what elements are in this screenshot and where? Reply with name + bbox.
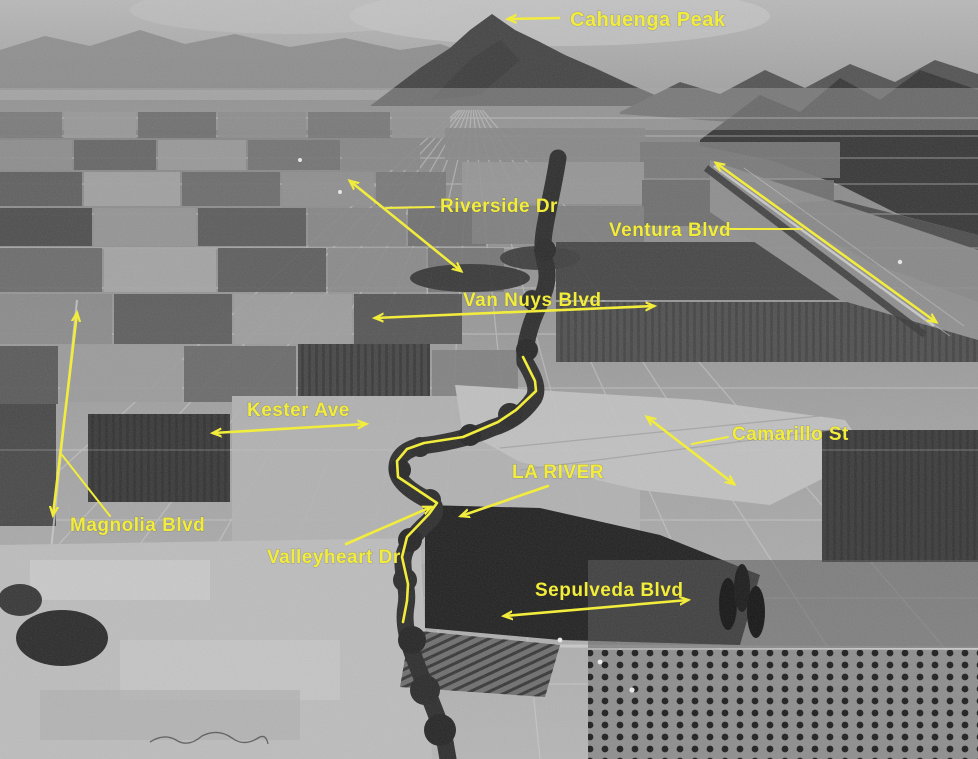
leader-riverside-dr [386, 207, 434, 208]
label-van-nuys-blvd: Van Nuys Blvd [463, 290, 602, 311]
label-sepulveda-blvd: Sepulveda Blvd [535, 580, 684, 601]
label-ventura-blvd: Ventura Blvd [609, 220, 731, 241]
label-camarillo-st: Camarillo St [732, 424, 849, 445]
label-la-river: LA RIVER [512, 462, 604, 483]
label-riverside-dr: Riverside Dr [440, 196, 558, 217]
label-valleyheart-dr: Valleyheart Dr [267, 547, 401, 568]
aerial-photograph: Cahuenga Peak Riverside Dr Ventura Blvd … [0, 0, 978, 759]
label-kester-ave: Kester Ave [247, 400, 350, 421]
label-cahuenga-peak: Cahuenga Peak [570, 9, 726, 31]
film-grain-overlay [0, 0, 978, 759]
arrow-cahuenga-peak [508, 18, 559, 19]
photo-background [0, 0, 978, 759]
label-magnolia-blvd: Magnolia Blvd [70, 515, 205, 536]
annotated-aerial-photo: Cahuenga Peak Riverside Dr Ventura Blvd … [0, 0, 978, 759]
